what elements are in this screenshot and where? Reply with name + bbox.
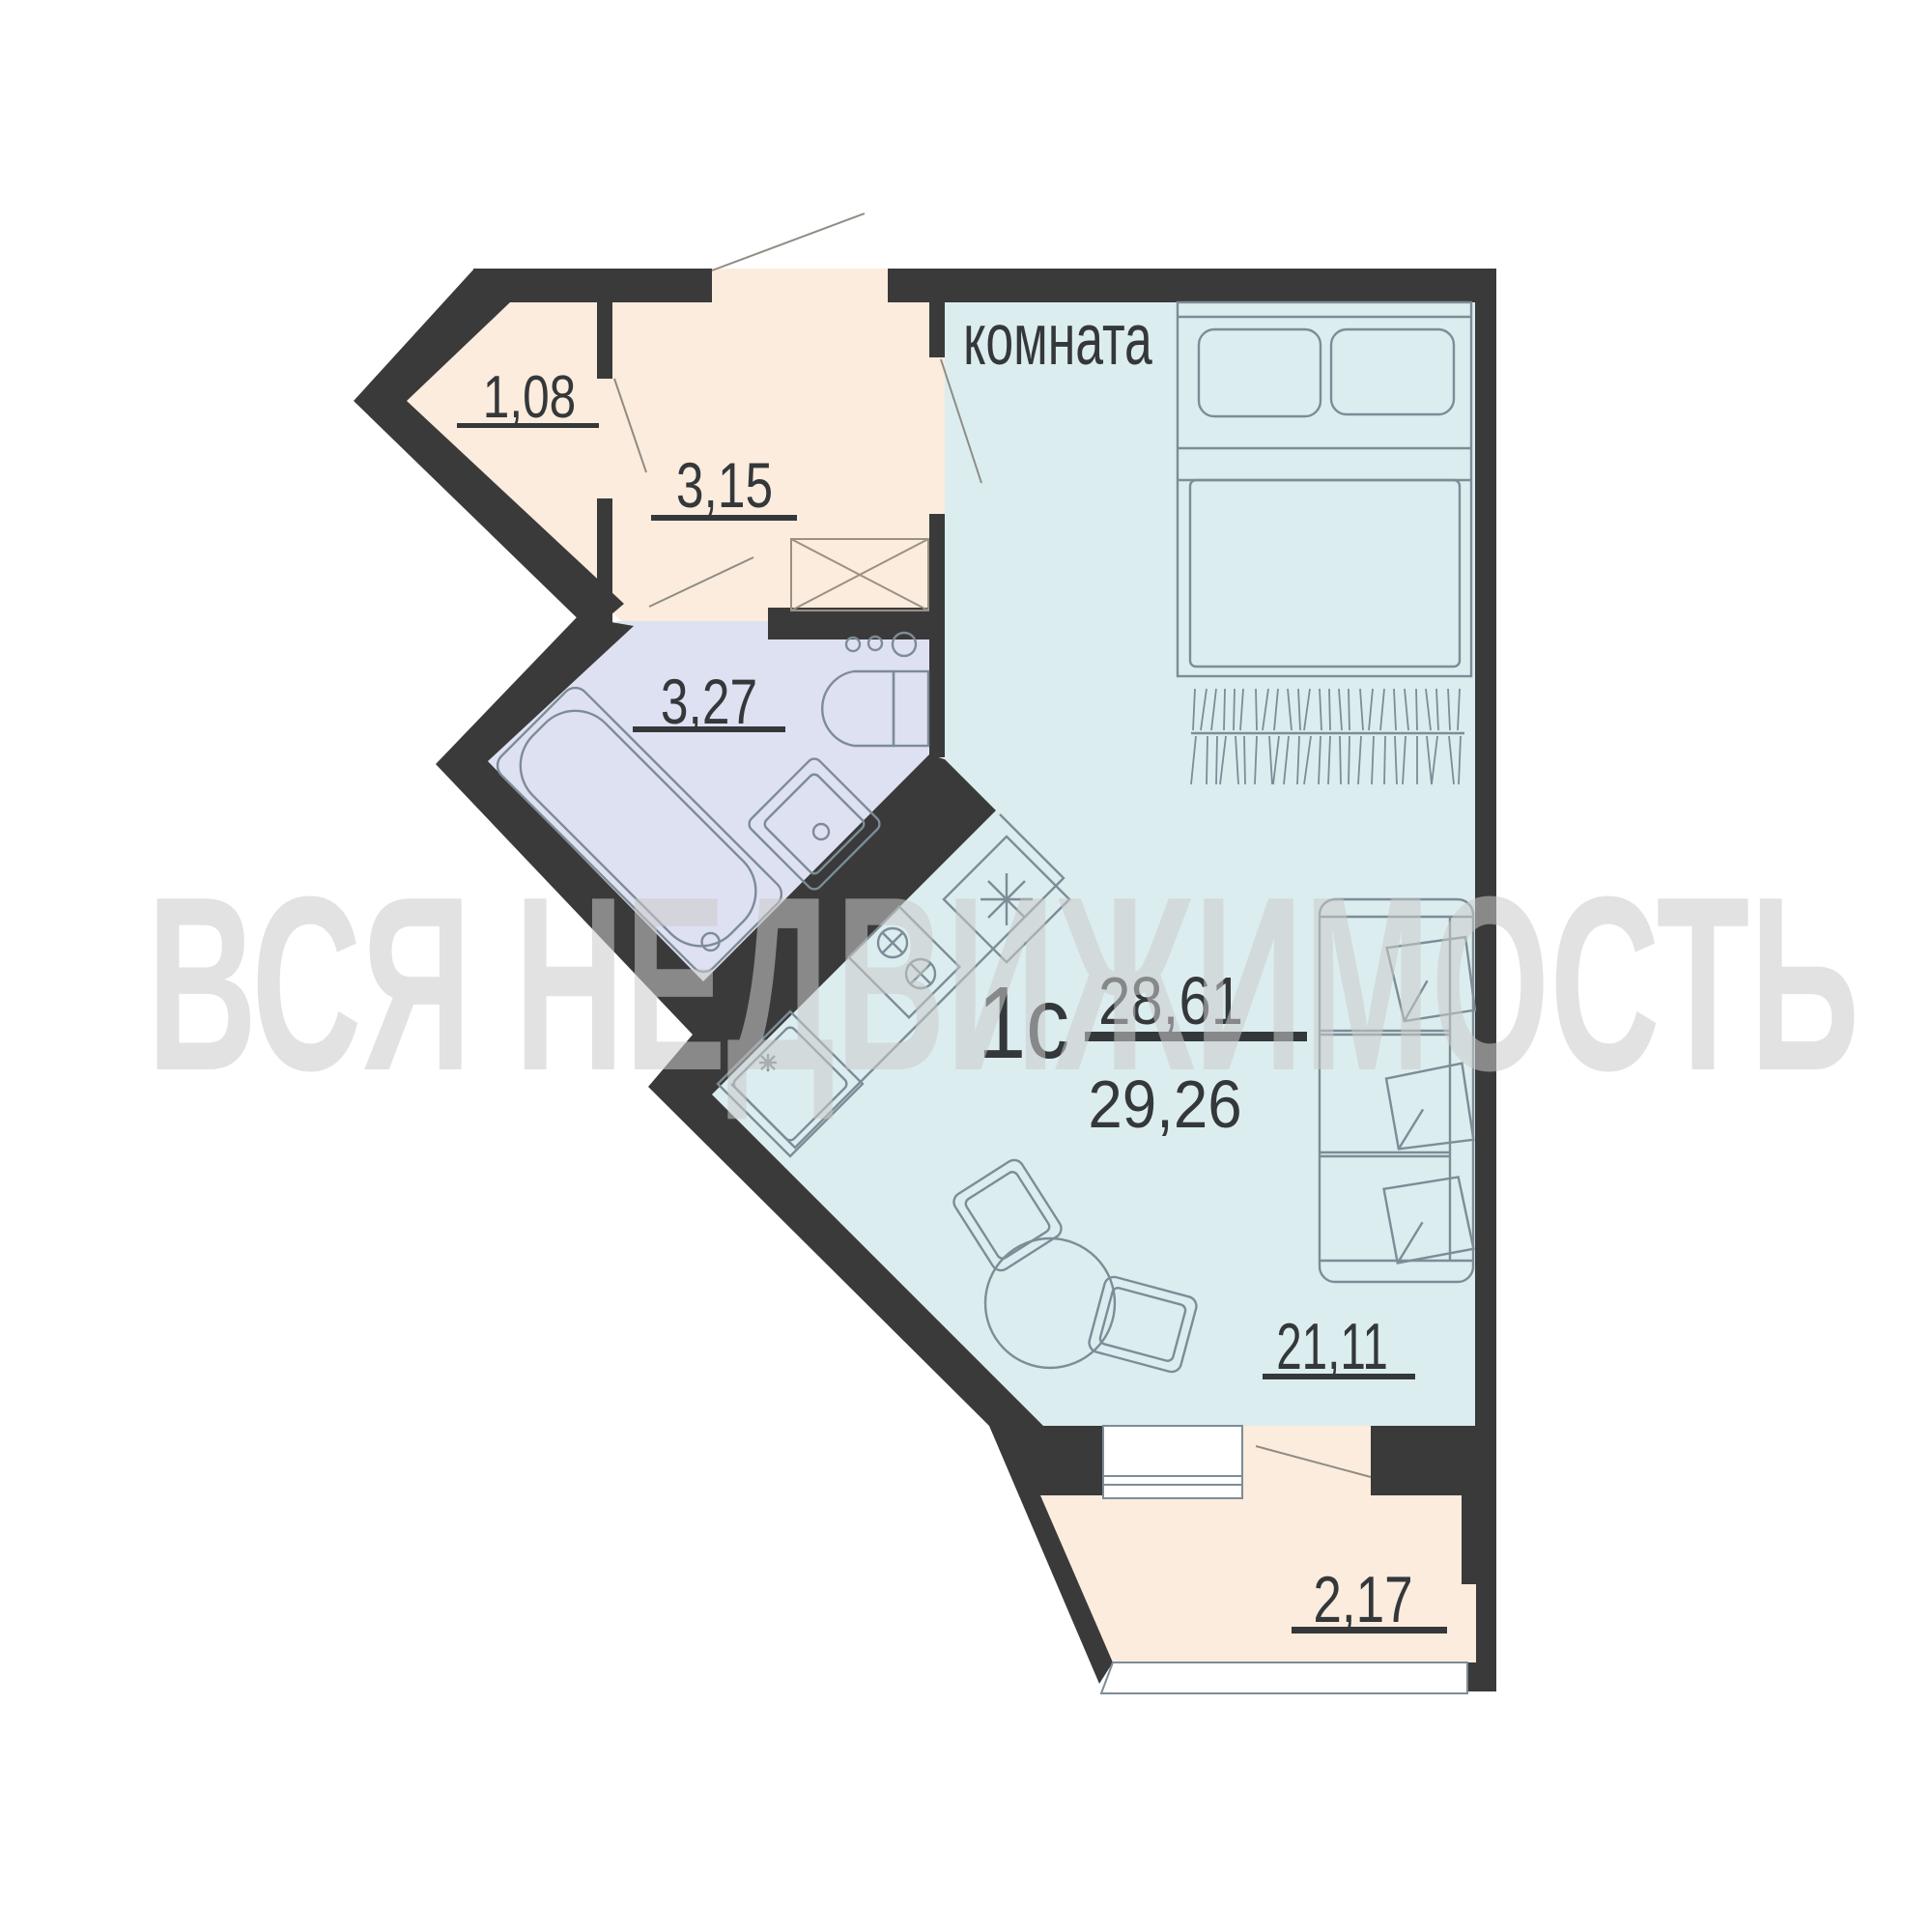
svg-text:21,11: 21,11 — [1276, 1311, 1388, 1383]
svg-text:комната: комната — [963, 298, 1152, 380]
svg-text:ВСЯ НЕДВИЖИМОСТЬ: ВСЯ НЕДВИЖИМОСТЬ — [147, 846, 1860, 1123]
svg-text:3,15: 3,15 — [676, 449, 773, 522]
svg-text:1,08: 1,08 — [483, 363, 577, 431]
svg-text:2,17: 2,17 — [1313, 1563, 1412, 1636]
